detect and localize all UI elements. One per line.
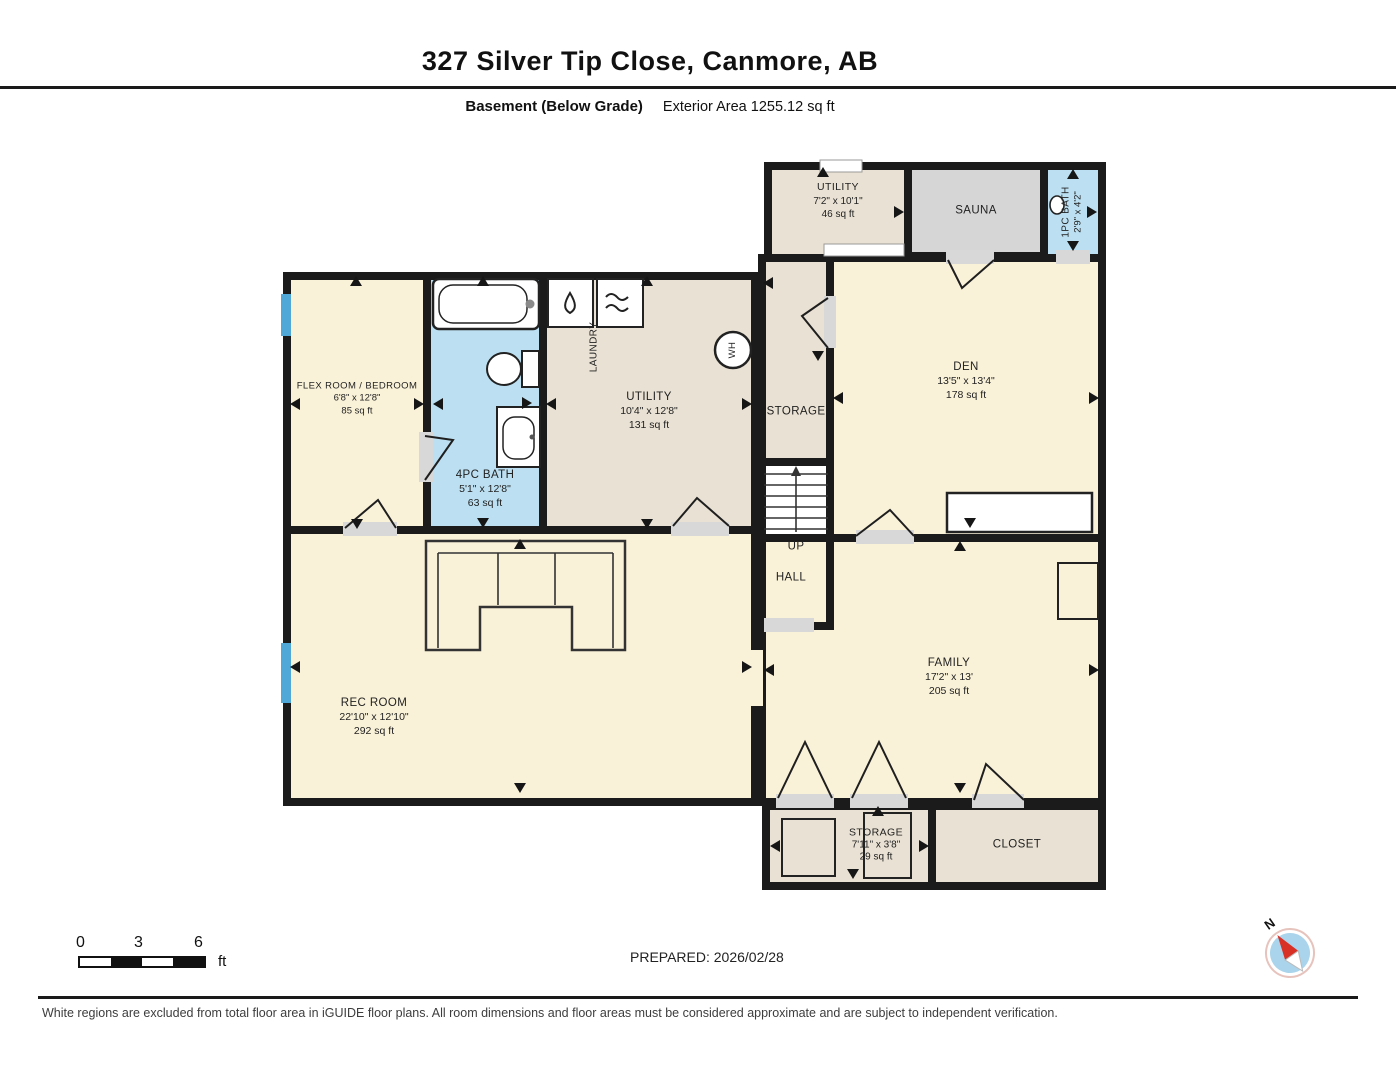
scale-tick-6: 6 — [194, 934, 203, 952]
room-label-family: FAMILY 17'2" x 13' 205 sq ft — [925, 656, 973, 698]
room-label-utility-main: UTILITY 10'4" x 12'8" 131 sq ft — [620, 390, 678, 432]
room-label-utility-top: UTILITY 7'2" x 10'1" 46 sq ft — [813, 181, 862, 221]
compass-north-label: N — [1261, 915, 1277, 933]
den-shelf — [947, 493, 1092, 532]
stairs-up-label: UP — [788, 540, 805, 555]
scale-unit: ft — [218, 953, 226, 970]
scale-tick-0: 0 — [76, 934, 85, 952]
floor-plan-svg: N — [0, 0, 1396, 1080]
room-label-flex-room: FLEX ROOM / BEDROOM 6'8" x 12'8" 85 sq f… — [297, 380, 418, 417]
washer-icon — [548, 279, 593, 327]
bathtub-icon — [433, 279, 539, 329]
toilet-icon — [522, 351, 539, 387]
prepared-date: PREPARED: 2026/02/28 — [630, 949, 784, 965]
room-label-closet: CLOSET — [993, 838, 1041, 853]
water-heater-label: WH — [727, 342, 739, 359]
scale-tick-3: 3 — [134, 934, 143, 952]
room-label-4pc-bath: 4PC BATH 5'1" x 12'8" 63 sq ft — [456, 468, 515, 510]
room-label-rec-room: REC ROOM 22'10" x 12'10" 292 sq ft — [339, 696, 408, 738]
compass-icon: N — [1246, 904, 1324, 986]
room-label-storage-mid: STORAGE — [767, 405, 826, 420]
disclaimer-text: White regions are excluded from total fl… — [42, 1006, 1058, 1020]
room-label-hall: HALL — [776, 571, 806, 586]
room-label-den: DEN 13'5" x 13'4" 178 sq ft — [937, 360, 995, 402]
room-label-storage-bottom: STORAGE 7'11" x 3'8" 29 sq ft — [849, 827, 903, 864]
scale-bar-segments — [78, 956, 206, 968]
room-label-sauna: SAUNA — [955, 204, 997, 219]
room-label-laundry: LAUNDRY — [588, 322, 601, 372]
scale-bar: 0 3 6 ft — [76, 934, 306, 978]
room-label-1pc-bath: 1PC BATH 2'9" x 4'2" — [1059, 186, 1084, 237]
dryer-icon — [597, 279, 643, 327]
